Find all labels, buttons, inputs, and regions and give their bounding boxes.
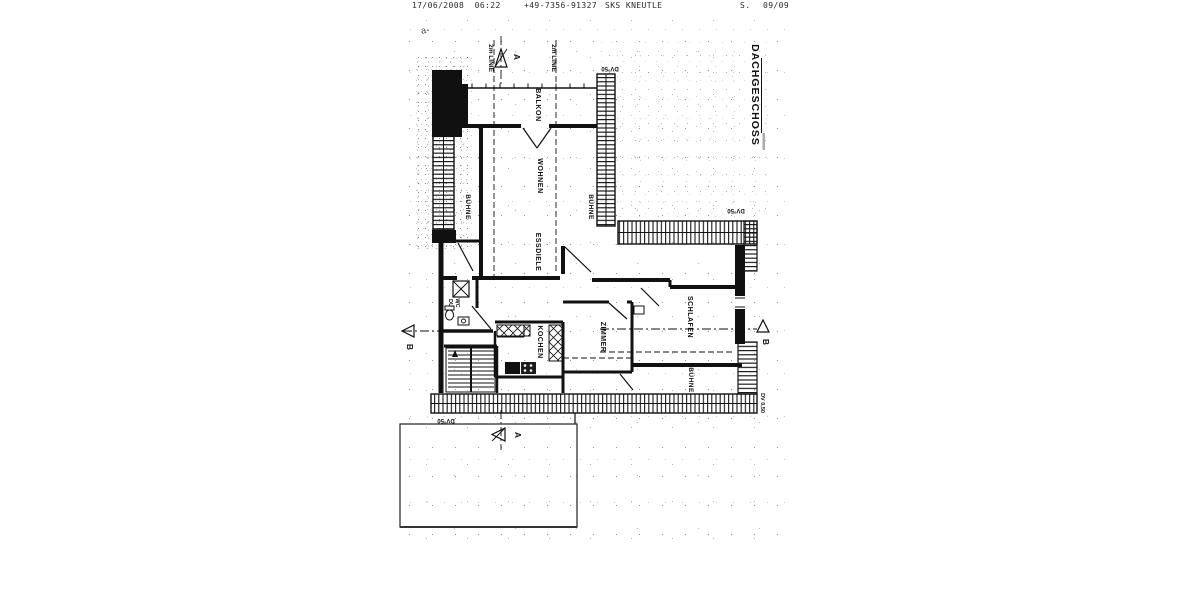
marker-dv-bottom-right: DV 0,50 [759,393,765,413]
marker-section-b-right: B [761,339,771,345]
fax-page-number: 09/09 [763,1,789,10]
fax-number: +49-7356-91327 [524,1,597,10]
room-label-wc: WC [454,298,460,307]
marker-2m-line-right: 2m LINIE [550,44,557,72]
room-label-buehne-right: BÜHNE [587,194,596,220]
marker-section-a-top: A [512,54,522,60]
room-label-kochen: KOCHEN [536,325,543,358]
room-label-essdiele: ESSDIELE [534,233,541,272]
marker-section-b-left: B [405,344,415,350]
marker-dv-right: DV°50 [727,207,745,213]
room-label-balkon: BALKON [534,88,541,122]
room-label-wohnen: WOHNEN [536,158,543,194]
marker-dv-top: DV°50 [601,65,619,71]
room-label-buehne-left: BÜHNE [464,194,473,220]
room-label-zimmer: ZIMMER [599,322,606,353]
fax-scan-page: 17/06/2008 06:22 +49-7356-91327 SKS KNEU… [0,0,1200,600]
floorplan-drawing: BALKON WOHNEN BÜHNE BÜHNE ESSDIELE DU WC… [395,20,795,540]
room-label-schlafen: SCHLAFEN [686,296,693,338]
fax-datetime: 17/06/2008 06:22 [412,1,501,10]
marker-section-a-bottom: A [513,432,523,438]
title-block: DACHGESCHOSS [749,44,765,150]
title-block-smudge [763,133,766,150]
marker-2m-line-left: 2m LINIE [487,44,494,72]
kitchen-fixtures [497,325,562,374]
wall-lines [441,84,742,425]
marker-dv-bottom-left: DV°50 [437,417,455,423]
staircase [446,348,495,392]
room-label-buehne-bottom: BÜHNE [687,367,696,393]
fax-sender: SKS KNEUTLE [605,1,662,10]
bathroom-fixtures [445,281,644,325]
lower-outline [400,424,577,527]
fax-header: 17/06/2008 06:22 +49-7356-91327 SKS KNEU… [0,1,1200,13]
plan-title: DACHGESCHOSS [749,44,761,146]
fax-page-label: S. [740,1,750,10]
room-label-du: DU [447,299,453,307]
